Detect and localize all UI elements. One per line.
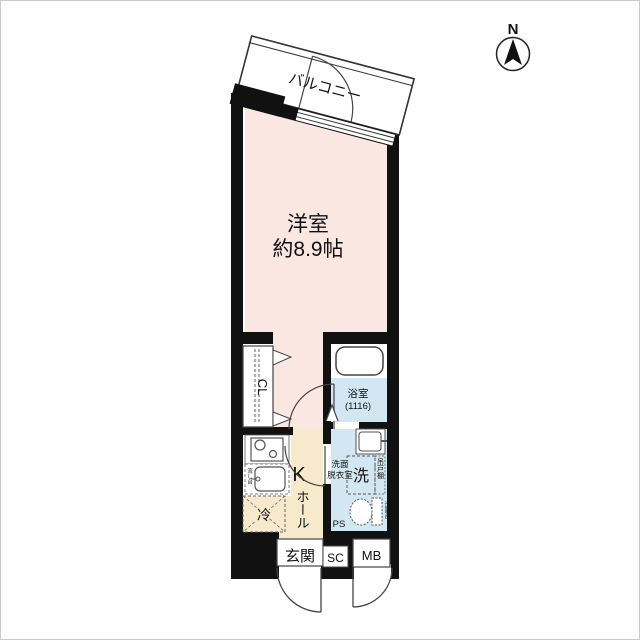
floorplan-page: バルコニー CL 洋室 約8.9帖 浴室 (1116) 流し台 冷 K ホ bbox=[0, 0, 640, 640]
washer-label: 洗 bbox=[353, 467, 369, 485]
washbasin bbox=[356, 429, 387, 454]
fridge-label: 冷 bbox=[257, 507, 271, 523]
sink-label: 流し台 bbox=[246, 467, 253, 486]
bathroom-size: (1116) bbox=[345, 401, 371, 412]
vanity-label: 洗面台 bbox=[383, 500, 390, 520]
sink-faucet bbox=[256, 477, 260, 481]
bathroom-floor bbox=[331, 378, 387, 422]
washroom-label-line1: 洗面 bbox=[331, 459, 349, 469]
entrance-label: 玄関 bbox=[285, 548, 315, 565]
north-label: N bbox=[508, 21, 519, 38]
room-size: 約8.9帖 bbox=[272, 238, 343, 261]
bathtub bbox=[336, 347, 383, 375]
kitchen-counter bbox=[245, 435, 289, 494]
fridge-space: 冷 bbox=[243, 496, 285, 532]
washroom-label-line2: 脱衣室 bbox=[327, 470, 353, 480]
hall-label: ホール bbox=[295, 490, 310, 529]
stove-burner-small bbox=[270, 451, 277, 458]
shoe-closet-label: SC bbox=[327, 551, 344, 565]
room-name: 洋室 bbox=[287, 213, 329, 236]
floorplan-drawing: バルコニー CL 洋室 約8.9帖 浴室 (1116) 流し台 冷 K ホ bbox=[1, 1, 640, 640]
bathroom-name: 浴室 bbox=[348, 387, 369, 400]
meter-box-label: MB bbox=[362, 548, 382, 563]
cupboard-label: 吊戸棚 bbox=[377, 458, 385, 480]
kitchen-label: K bbox=[292, 464, 306, 486]
pipe-space-label: PS bbox=[333, 519, 346, 530]
north-arrow-icon bbox=[504, 39, 522, 65]
stove-burner-large bbox=[255, 440, 265, 450]
north-compass: N bbox=[497, 21, 530, 71]
closet-label: CL bbox=[255, 379, 270, 396]
toilet bbox=[350, 498, 382, 525]
